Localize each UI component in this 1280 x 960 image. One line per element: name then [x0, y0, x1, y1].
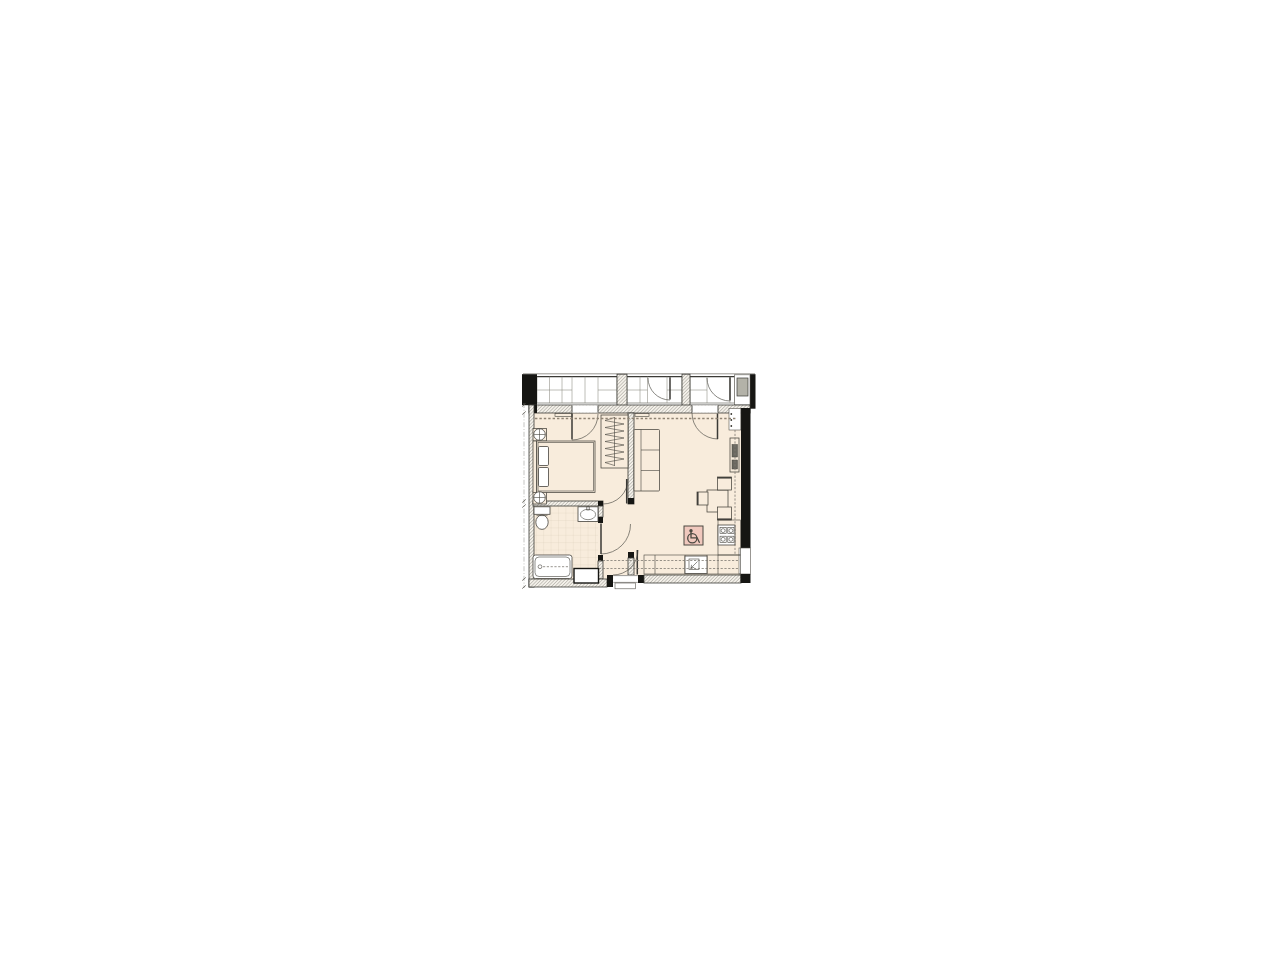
wall-unit [730, 438, 739, 472]
entrance-jamb [638, 575, 644, 583]
shaft-dot [730, 419, 732, 421]
wall-block [741, 574, 751, 583]
pillow [539, 468, 549, 487]
bathtub [533, 555, 572, 579]
kitchen-sink [685, 556, 707, 574]
page-background [0, 0, 1280, 960]
dining-chair [718, 477, 732, 490]
wheelchair-accessibility-marker [684, 526, 703, 545]
living-balcony-opening [692, 405, 718, 412]
shaft-dot [730, 425, 732, 427]
right-wall-black [741, 408, 751, 548]
utility-niche [574, 569, 599, 584]
washbasin [578, 507, 598, 522]
bathroom-wall [598, 506, 603, 517]
dining-chair [718, 507, 732, 520]
bottom-wall [644, 575, 741, 583]
wall-cap [598, 517, 603, 523]
dining-chair [697, 492, 708, 505]
lamp-symbol [534, 492, 546, 504]
entrance-opening [613, 575, 638, 583]
wardrobe [601, 415, 628, 468]
sofa [634, 430, 660, 492]
bedroom-balcony-opening [572, 405, 598, 412]
entrance-jamb [607, 575, 613, 587]
wall-cap [598, 555, 603, 561]
cooktop [718, 525, 735, 545]
floor-plan [521, 372, 757, 592]
entrance-step [615, 583, 636, 589]
ac-unit [737, 378, 748, 396]
wall-cap [598, 501, 603, 506]
pillow [539, 447, 549, 466]
bed-headboard [533, 441, 537, 493]
wall-block [750, 374, 756, 409]
wall-cap [628, 552, 634, 558]
lamp-symbol [534, 429, 546, 441]
bedroom-living-wall [628, 413, 634, 504]
shaft-dot [730, 413, 732, 415]
wall-cap [628, 498, 634, 504]
wall-block [522, 374, 537, 405]
